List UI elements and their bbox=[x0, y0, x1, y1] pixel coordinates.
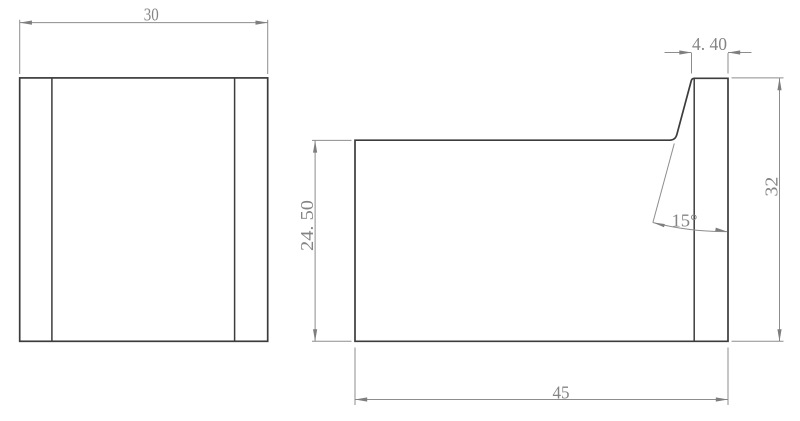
svg-text:32: 32 bbox=[761, 177, 781, 197]
svg-text:24. 50: 24. 50 bbox=[297, 200, 317, 251]
svg-text:4. 40: 4. 40 bbox=[692, 34, 727, 54]
svg-text:15°: 15° bbox=[672, 211, 698, 231]
svg-text:45: 45 bbox=[553, 382, 570, 402]
svg-text:30: 30 bbox=[144, 4, 159, 24]
